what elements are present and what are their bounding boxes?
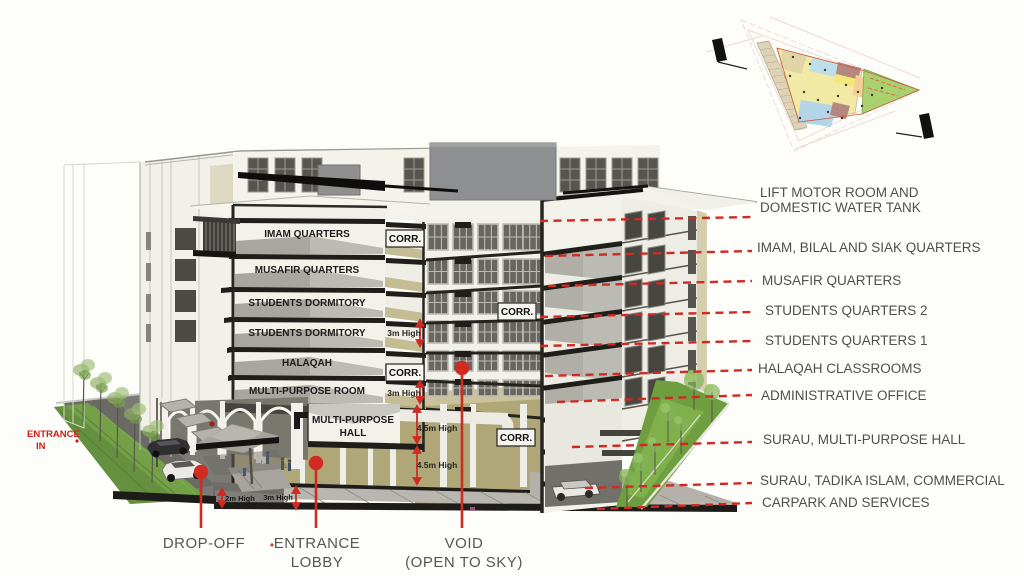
svg-text:SURAU, TADIKA ISLAM, COMMERCIA: SURAU, TADIKA ISLAM, COMMERCIAL xyxy=(760,473,1005,488)
svg-text:HALL: HALL xyxy=(340,428,367,439)
svg-text:4.5m High: 4.5m High xyxy=(417,460,458,470)
svg-text:IMAM QUARTERS: IMAM QUARTERS xyxy=(264,229,350,240)
svg-text:CORR.: CORR. xyxy=(389,234,421,245)
svg-text:ADMINISTRATIVE OFFICE: ADMINISTRATIVE OFFICE xyxy=(761,388,927,403)
svg-text:HALAQAH: HALAQAH xyxy=(282,358,332,369)
svg-text:IN: IN xyxy=(36,441,46,452)
svg-text:2m High: 2m High xyxy=(225,494,255,503)
svg-text:STUDENTS DORMITORY: STUDENTS DORMITORY xyxy=(248,328,366,339)
svg-text:SURAU, MULTI-PURPOSE HALL: SURAU, MULTI-PURPOSE HALL xyxy=(763,432,966,447)
svg-text:(OPEN TO SKY): (OPEN TO SKY) xyxy=(405,554,523,571)
svg-text:MULTI-PURPOSE ROOM: MULTI-PURPOSE ROOM xyxy=(249,386,365,397)
svg-text:3m High: 3m High xyxy=(263,493,293,502)
svg-text:MULTI-PURPOSE: MULTI-PURPOSE xyxy=(312,415,394,426)
svg-text:CORR.: CORR. xyxy=(500,433,532,444)
svg-text:3m High: 3m High xyxy=(387,328,421,338)
svg-text:LIFT MOTOR ROOM AND: LIFT MOTOR ROOM AND xyxy=(760,185,919,200)
svg-text:STUDENTS QUARTERS 1: STUDENTS QUARTERS 1 xyxy=(765,333,928,348)
svg-text:3m High: 3m High xyxy=(387,388,421,398)
svg-text:MUSAFIR QUARTERS: MUSAFIR QUARTERS xyxy=(762,273,901,288)
svg-text:DOMESTIC WATER TANK: DOMESTIC WATER TANK xyxy=(760,200,921,215)
svg-text:4,5m High: 4,5m High xyxy=(417,423,458,433)
svg-text:DROP-OFF: DROP-OFF xyxy=(163,535,245,552)
svg-text:IMAM, BILAL AND SIAK QUARTERS: IMAM, BILAL AND SIAK QUARTERS xyxy=(757,240,981,255)
svg-text:CARPARK AND SERVICES: CARPARK AND SERVICES xyxy=(762,495,930,510)
svg-text:LOBBY: LOBBY xyxy=(291,554,344,571)
svg-text:HALAQAH CLASSROOMS: HALAQAH CLASSROOMS xyxy=(758,361,922,376)
svg-text:STUDENTS QUARTERS 2: STUDENTS QUARTERS 2 xyxy=(765,303,928,318)
svg-text:VOID: VOID xyxy=(445,535,484,552)
svg-text:STUDENTS DORMITORY: STUDENTS DORMITORY xyxy=(248,298,366,309)
svg-text:CORR.: CORR. xyxy=(389,368,421,379)
svg-text:MUSAFIR QUARTERS: MUSAFIR QUARTERS xyxy=(255,265,360,276)
svg-text:CORR.: CORR. xyxy=(501,307,533,318)
svg-text:ENTRANCE: ENTRANCE xyxy=(27,429,80,440)
svg-text:ENTRANCE: ENTRANCE xyxy=(274,535,361,552)
